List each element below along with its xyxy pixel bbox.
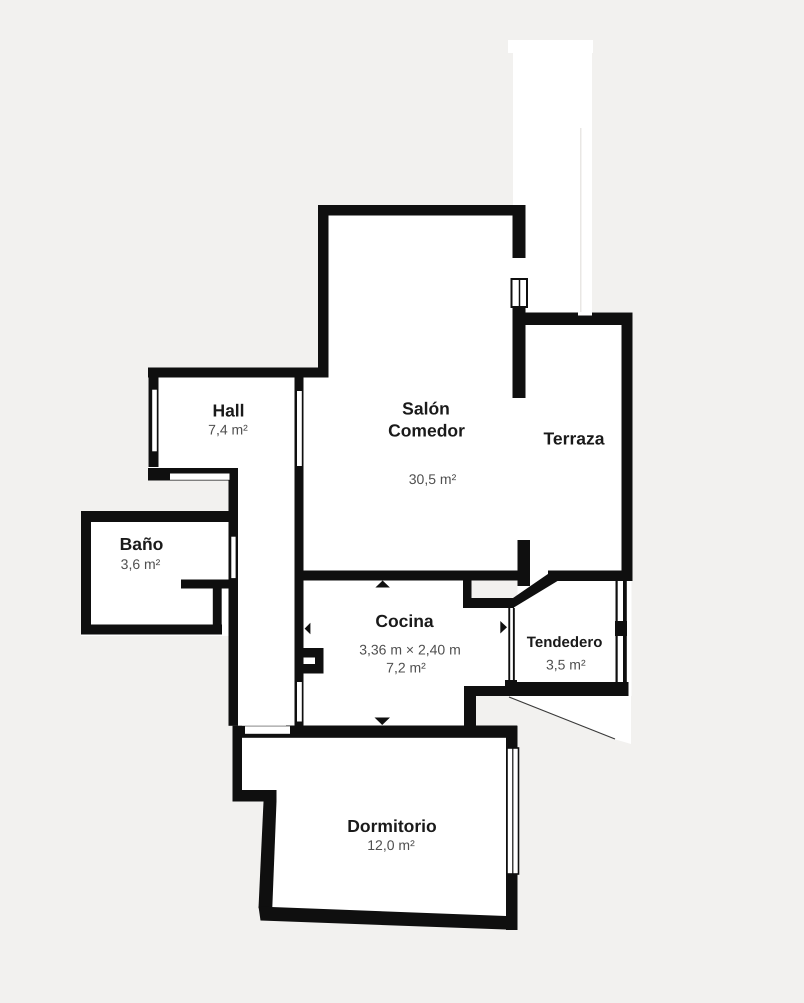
svg-text:12,0 m²: 12,0 m² [367,837,415,853]
svg-text:7,4 m²: 7,4 m² [208,422,248,438]
svg-text:Tendedero: Tendedero [527,634,603,651]
svg-text:Hall: Hall [212,400,244,420]
svg-text:Comedor: Comedor [388,421,465,441]
svg-text:3,36 m × 2,40 m: 3,36 m × 2,40 m [359,642,461,658]
svg-text:30,5 m²: 30,5 m² [409,471,457,487]
svg-text:7,2 m²: 7,2 m² [386,660,426,676]
svg-text:Baño: Baño [120,534,164,554]
svg-text:3,5 m²: 3,5 m² [546,657,586,673]
svg-text:Cocina: Cocina [375,611,434,631]
svg-text:Terraza: Terraza [544,428,605,448]
svg-text:Salón: Salón [402,399,450,419]
svg-text:3,6 m²: 3,6 m² [121,556,161,572]
svg-text:Dormitorio: Dormitorio [347,816,436,836]
